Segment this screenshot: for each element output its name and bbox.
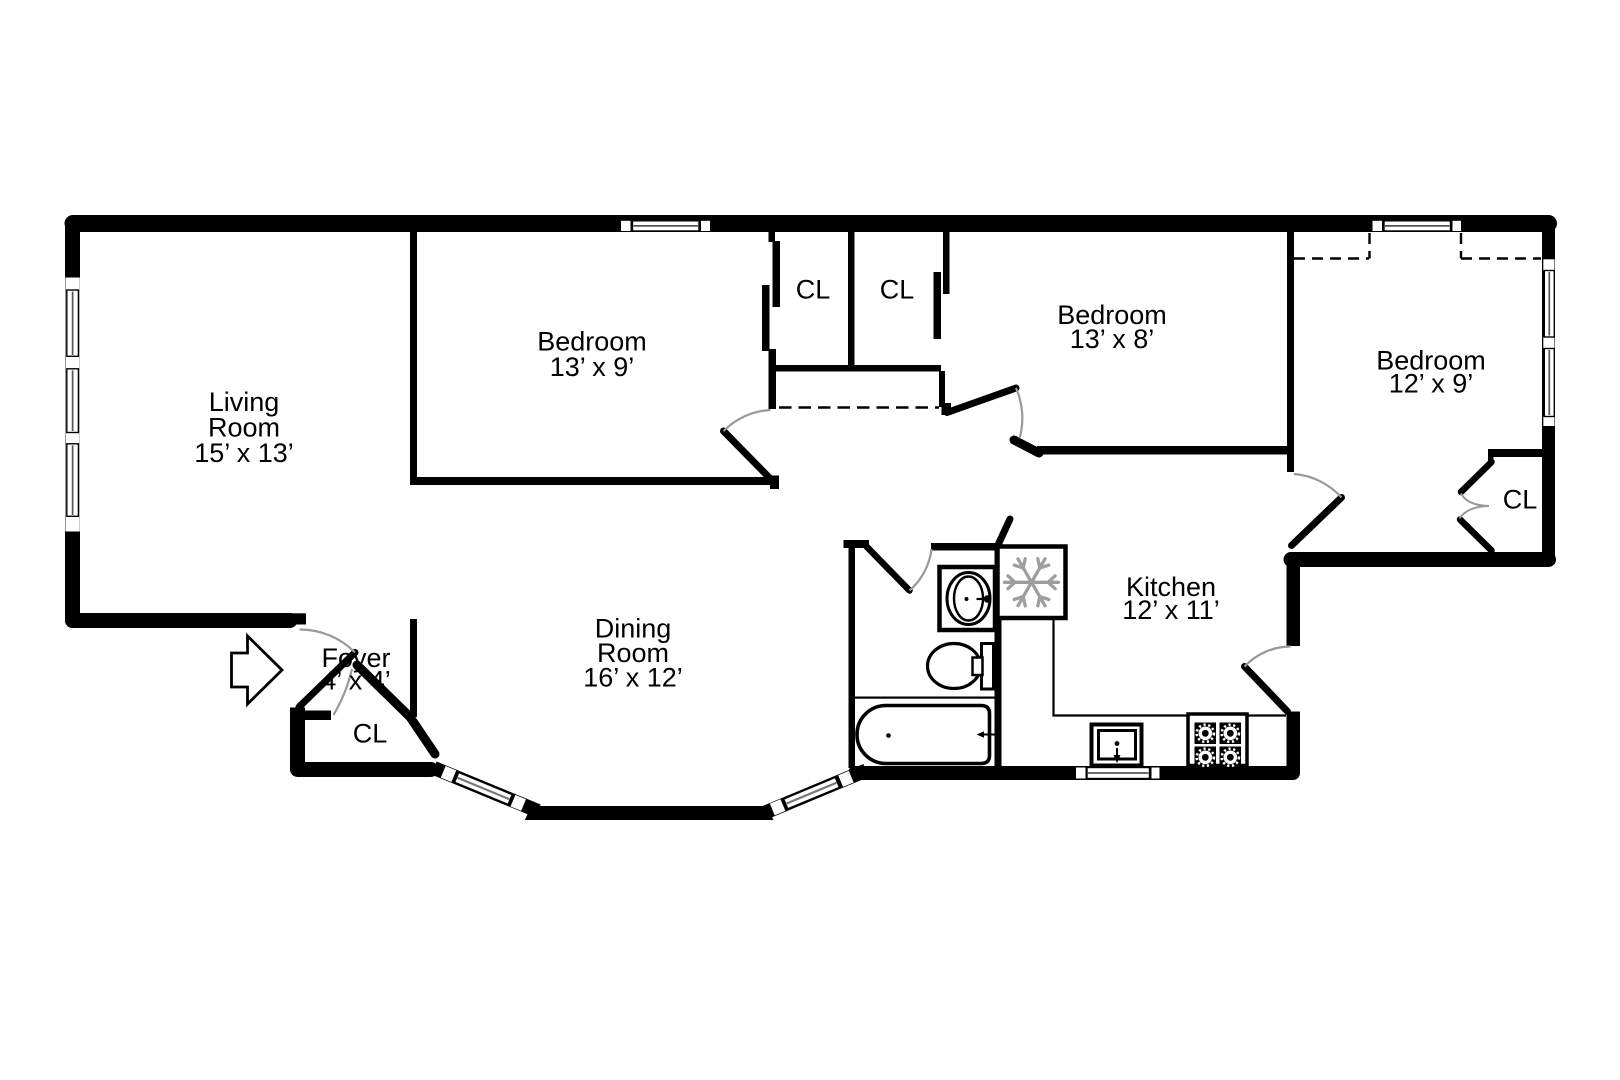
svg-text:12’ x 11’: 12’ x 11’ (1122, 595, 1220, 625)
svg-text:4’ x 4’: 4’ x 4’ (321, 666, 391, 696)
svg-text:CL: CL (796, 275, 831, 305)
svg-text:13’ x 8’: 13’ x 8’ (1070, 324, 1155, 354)
svg-text:CL: CL (1503, 485, 1538, 515)
svg-text:CL: CL (880, 275, 915, 305)
svg-text:15’ x 13’: 15’ x 13’ (194, 438, 294, 468)
svg-text:13’ x 9’: 13’ x 9’ (550, 352, 635, 382)
svg-text:CL: CL (353, 719, 388, 749)
svg-text:12’ x 9’: 12’ x 9’ (1389, 369, 1474, 399)
svg-text:16’ x 12’: 16’ x 12’ (583, 663, 683, 693)
